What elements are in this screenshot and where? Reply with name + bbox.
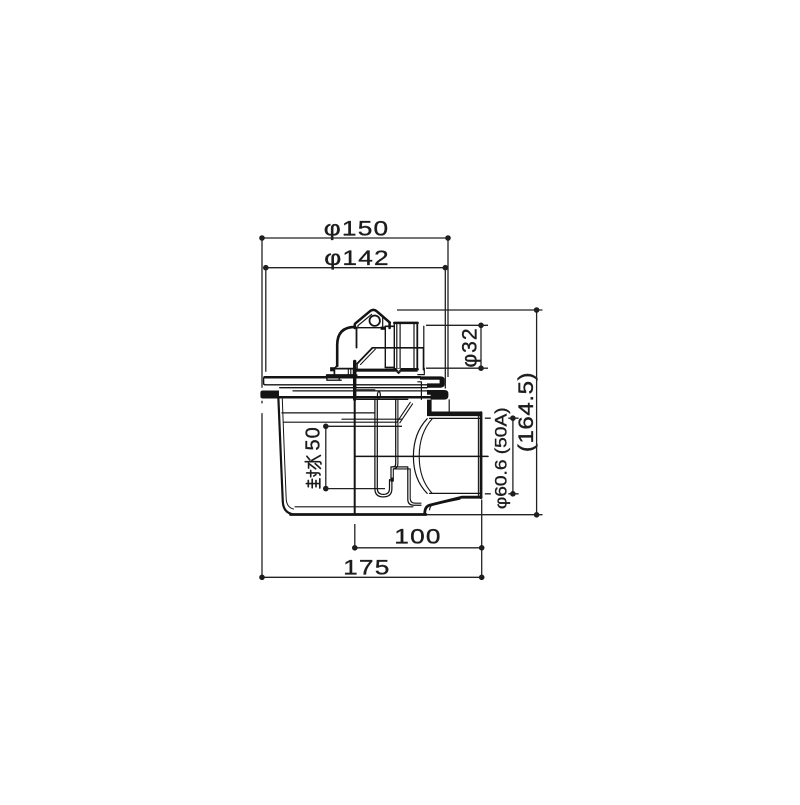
svg-text:100: 100: [394, 524, 441, 548]
svg-text:φ142: φ142: [324, 246, 390, 270]
svg-text:φ32: φ32: [457, 327, 481, 367]
svg-text:φ60.6 (50A): φ60.6 (50A): [492, 407, 510, 509]
svg-text:50: 50: [303, 426, 325, 450]
svg-text:φ150: φ150: [324, 217, 390, 241]
svg-text:175: 175: [343, 556, 390, 580]
svg-text:(164.5): (164.5): [513, 372, 537, 452]
